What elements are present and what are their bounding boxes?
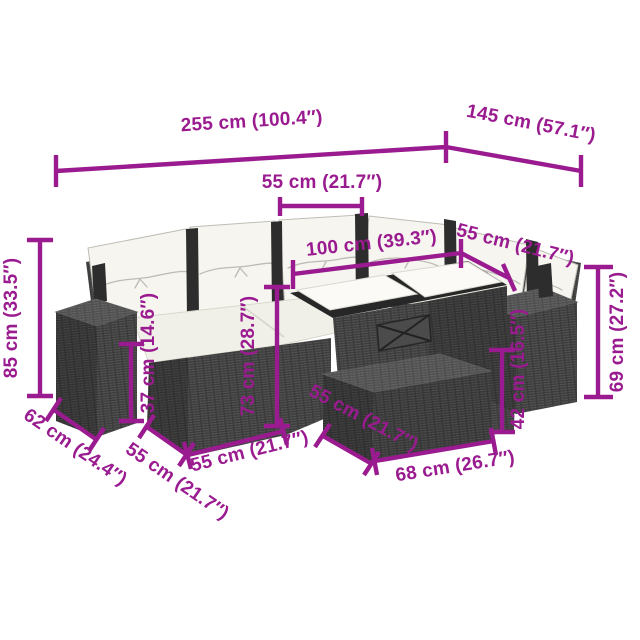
dim-255: 255 cm (100.4″) [56,107,446,187]
dim-label-37: 37 cm (14.6″) [138,293,159,414]
dim-label-42: 42 cm (16.5″) [508,309,529,430]
dim-85: 85 cm (33.5″) [1,240,53,396]
dim-label-55-top: 55 cm (21.7″) [262,172,383,193]
diagram-canvas: 255 cm (100.4″) 145 cm (57.1″) 55 cm (21… [0,0,640,640]
dim-55-top: 55 cm (21.7″) [262,172,383,216]
dim-label-85: 85 cm (33.5″) [1,258,22,379]
dim-145: 145 cm (57.1″) [446,101,597,187]
dim-label-255: 255 cm (100.4″) [180,107,323,137]
dim-label-73: 73 cm (28.7″) [238,296,259,417]
dim-label-69: 69 cm (27.2″) [607,272,628,393]
armrest-post-right [537,263,553,298]
armrest-post-left [92,263,107,303]
dim-label-145: 145 cm (57.1″) [465,101,598,147]
dimension-diagram: 255 cm (100.4″) 145 cm (57.1″) 55 cm (21… [0,0,640,640]
dim-69: 69 cm (27.2″) [584,267,628,397]
